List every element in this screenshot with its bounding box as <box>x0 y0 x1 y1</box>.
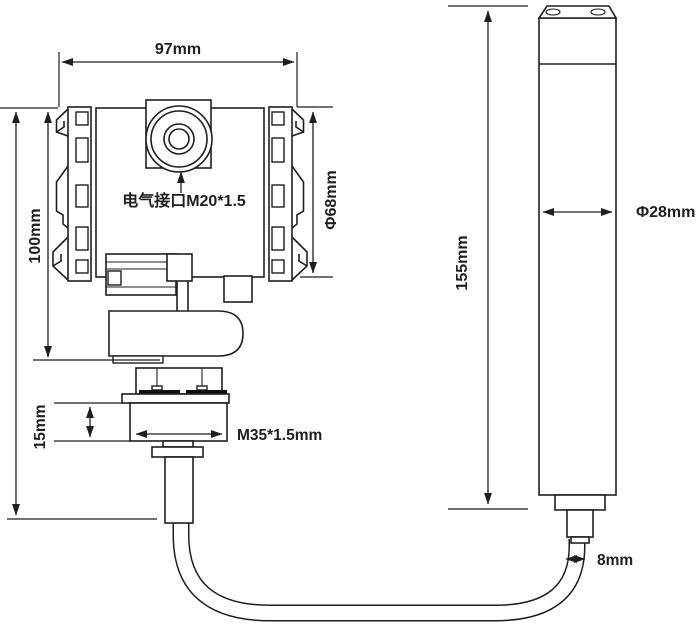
bolt-collar <box>136 368 227 395</box>
transmitter-housing <box>53 100 307 523</box>
side-bracket <box>224 276 252 302</box>
stem <box>177 281 188 311</box>
flange <box>122 394 229 403</box>
label-housing-width: 97mm <box>155 41 201 58</box>
probe-neck <box>555 495 605 543</box>
dim-97mm <box>59 52 297 107</box>
label-thread-height: 15mm <box>32 405 49 450</box>
dim-15mm <box>54 403 130 441</box>
probe-body <box>539 18 616 495</box>
left-cap <box>53 107 91 281</box>
label-housing-height: 100mm <box>27 208 44 263</box>
electrical-port <box>146 100 212 172</box>
probe <box>539 6 616 543</box>
right-cap <box>269 107 307 281</box>
label-probe-diameter: Φ28mm <box>636 204 695 221</box>
drawing-canvas: 97mm 100mm Φ68mm 电气接口M20*1.5 15mm M35*1.… <box>0 0 700 629</box>
thread-m35 <box>130 403 227 441</box>
process-body <box>109 311 243 363</box>
connection-cable <box>181 521 577 613</box>
lower-collar <box>152 447 203 457</box>
label-electrical-port: 电气接口M20*1.5 <box>122 191 246 210</box>
terminal-block <box>106 254 176 295</box>
dimension-drawing: 97mm 100mm Φ68mm 电气接口M20*1.5 15mm M35*1.… <box>0 0 700 629</box>
thread-stub <box>163 441 193 447</box>
label-cable-diameter: 8mm <box>597 552 633 569</box>
label-cap-diameter: Φ68mm <box>323 170 340 229</box>
label-probe-length: 155mm <box>454 235 471 290</box>
tab-block <box>167 254 192 281</box>
label-thread-spec: M35*1.5mm <box>237 427 322 444</box>
connection-tube <box>165 457 193 523</box>
